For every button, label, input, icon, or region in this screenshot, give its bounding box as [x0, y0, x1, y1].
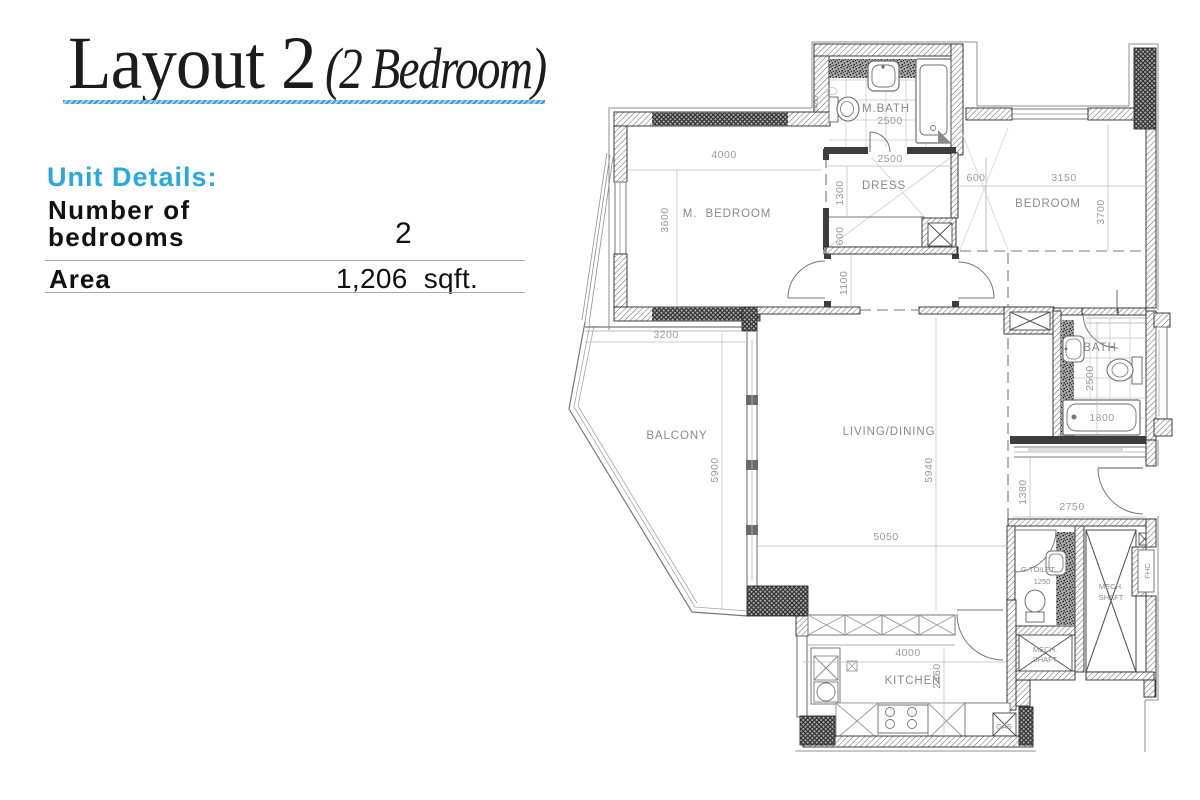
svg-text:M.BATH: M.BATH [862, 103, 910, 115]
svg-text:600: 600 [966, 172, 985, 184]
svg-text:2500: 2500 [1084, 365, 1096, 390]
svg-text:600: 600 [834, 226, 846, 245]
svg-text:1100: 1100 [838, 271, 850, 296]
svg-text:1380: 1380 [1017, 479, 1029, 504]
svg-text:2750: 2750 [1059, 501, 1084, 513]
svg-text:GAS: GAS [996, 722, 1012, 731]
svg-text:3200: 3200 [653, 329, 678, 341]
svg-text:1800: 1800 [1089, 412, 1114, 424]
svg-text:5940: 5940 [923, 457, 935, 482]
svg-text:M. BEDROOM: M. BEDROOM [683, 208, 772, 220]
svg-text:SHAFT: SHAFT [1033, 655, 1058, 664]
svg-text:1300: 1300 [834, 180, 846, 205]
svg-text:4000: 4000 [895, 647, 920, 659]
svg-text:LIVING/DINING: LIVING/DINING [843, 426, 936, 438]
svg-text:2500: 2500 [877, 153, 902, 165]
svg-text:2460: 2460 [931, 663, 943, 688]
svg-text:2500: 2500 [877, 115, 902, 127]
svg-text:SHAFT: SHAFT [1099, 593, 1124, 602]
svg-text:G.TOILET: G.TOILET [1021, 565, 1055, 574]
svg-text:FHC: FHC [1143, 563, 1152, 579]
svg-text:3700: 3700 [1095, 199, 1107, 224]
svg-text:3150: 3150 [1051, 172, 1076, 184]
svg-text:5050: 5050 [873, 531, 898, 543]
svg-text:DRESS: DRESS [862, 180, 906, 192]
svg-text:1250: 1250 [1034, 577, 1051, 586]
svg-text:3600: 3600 [659, 207, 671, 232]
svg-text:MECH.: MECH. [1099, 582, 1123, 591]
svg-text:BALCONY: BALCONY [646, 430, 707, 442]
svg-text:5900: 5900 [709, 457, 721, 482]
svg-text:4000: 4000 [711, 149, 736, 161]
svg-text:MECH.: MECH. [1033, 645, 1057, 654]
svg-text:BEDROOM: BEDROOM [1015, 198, 1081, 210]
svg-text:BATH: BATH [1083, 342, 1116, 354]
svg-text:2400: 2400 [811, 96, 820, 113]
